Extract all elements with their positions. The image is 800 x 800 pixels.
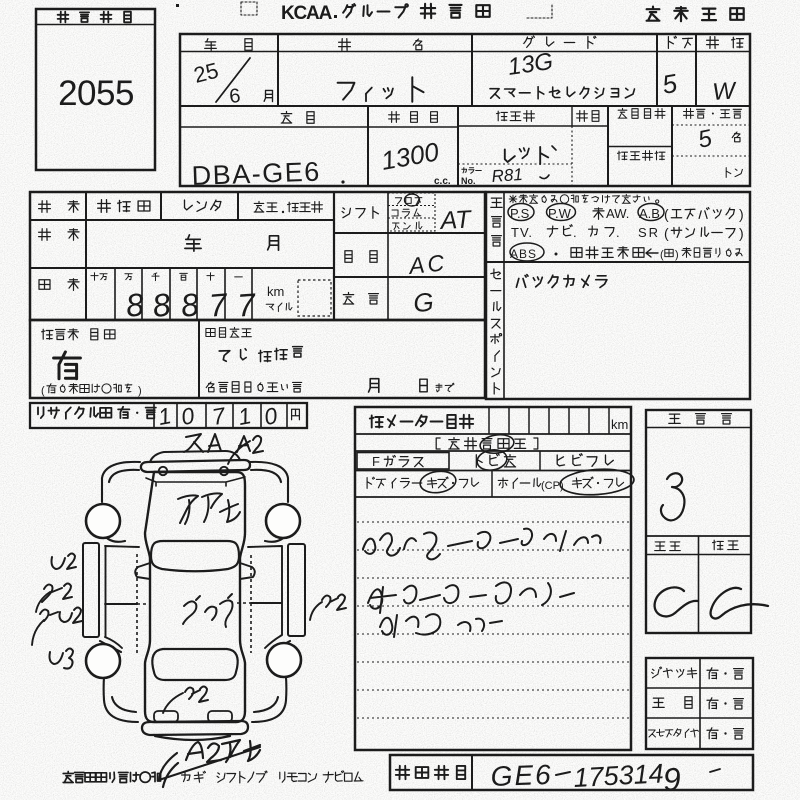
svg-text:KCAA: KCAA bbox=[281, 3, 333, 24]
svg-text:ABS: ABS bbox=[510, 247, 537, 261]
svg-text:2055: 2055 bbox=[58, 74, 134, 113]
svg-text:W: W bbox=[712, 77, 739, 106]
svg-text:AT: AT bbox=[438, 205, 473, 235]
svg-text:GE6: GE6 bbox=[490, 759, 553, 792]
svg-text:AW.: AW. bbox=[606, 206, 629, 221]
svg-text:(: ( bbox=[664, 225, 669, 241]
svg-text:c.c.: c.c. bbox=[434, 176, 451, 187]
svg-text:AC: AC bbox=[406, 249, 448, 279]
svg-text:km: km bbox=[267, 284, 284, 299]
svg-text:(: ( bbox=[660, 249, 664, 261]
svg-text:SR: SR bbox=[638, 225, 660, 240]
svg-text:6: 6 bbox=[228, 85, 241, 108]
svg-text:175314: 175314 bbox=[573, 758, 665, 793]
svg-text:No.: No. bbox=[461, 176, 476, 186]
svg-text:F: F bbox=[372, 454, 380, 469]
svg-text:DBA-GE6: DBA-GE6 bbox=[191, 157, 321, 191]
svg-text:G: G bbox=[412, 287, 434, 318]
svg-text:): ) bbox=[739, 206, 744, 222]
svg-text:km: km bbox=[611, 417, 628, 432]
svg-text:): ) bbox=[739, 225, 744, 241]
svg-text:.: . bbox=[616, 225, 620, 240]
svg-text:): ) bbox=[675, 249, 679, 261]
svg-text:9: 9 bbox=[661, 761, 682, 798]
svg-text:(: ( bbox=[41, 385, 45, 397]
svg-text:): ) bbox=[138, 385, 142, 397]
svg-text:.: . bbox=[573, 225, 577, 240]
svg-text:R81: R81 bbox=[491, 165, 523, 186]
svg-text:TV.: TV. bbox=[511, 225, 533, 240]
svg-text:(: ( bbox=[664, 206, 669, 222]
